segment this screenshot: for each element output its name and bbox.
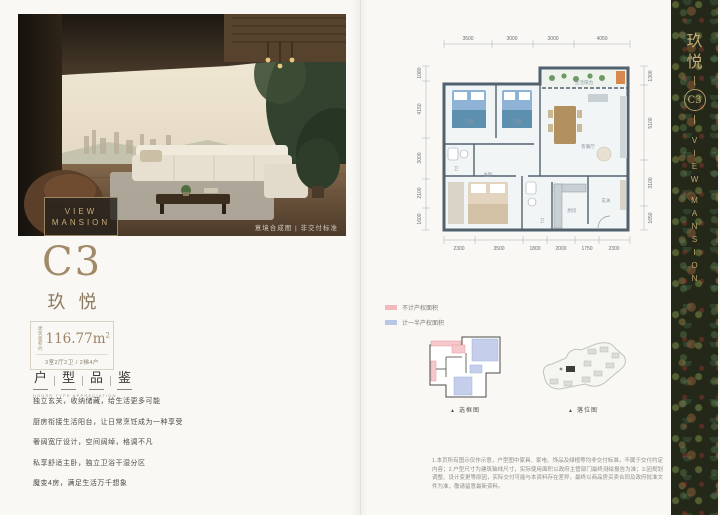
legend-swatch-pink [385,305,397,310]
hero-photo: VIEW MANSION 意境合成图 | 非交付标准 [18,14,346,236]
armchair-icon [597,147,611,161]
feature-item: 厨房衔接生活阳台，让日常烹饪成为一种享受 [33,417,333,427]
svg-text:3100: 3100 [648,177,654,188]
svg-text:1600: 1600 [417,213,423,224]
title-char: 型 [61,367,76,390]
legend-item: 计一半产权面积 [385,318,444,327]
triangle-marker-icon: ▲ [450,408,456,414]
page-fold-line [360,0,361,515]
title-char: 鉴 [117,367,132,390]
unit-code: C3 [12,240,132,284]
svg-text:3500: 3500 [462,36,473,42]
dims-top: 3500 3000 3000 4050 [444,36,630,48]
sidebar-title: 玖悦 [686,30,702,72]
dims-bottom: 2300 3500 1800 2000 1750 2300 [444,236,630,252]
sidebar-unit-badge: C3 [684,89,706,111]
floorplan: 3500 3000 3000 4050 2300 3500 1800 2000 … [392,26,660,256]
title-char: 品 [89,367,104,390]
divider [36,354,108,355]
title-char: 户 [33,367,48,390]
view-mansion-badge: VIEW MANSION [44,197,118,236]
area-value: 116.77m2 [45,331,110,347]
divider [694,115,695,124]
svg-text:2100: 2100 [417,187,423,198]
feature-item: 奢阔宽厅设计，空间阔绰，格调不凡 [33,437,333,447]
shoe-cabinet-icon [620,180,626,210]
unit-info-block: C3 玖悦 建筑面积约 116.77m2 3室2厅2卫 / 2梯4户 [12,240,132,370]
unit-name: 玖悦 [12,288,132,314]
svg-text:1650: 1650 [648,212,654,223]
svg-text:3500: 3500 [493,246,504,252]
dims-left: 1080 4150 3000 2100 1600 [417,66,430,230]
svg-text:4050: 4050 [596,36,607,42]
svg-text:次卧: 次卧 [512,118,522,125]
svg-text:主卧: 主卧 [483,171,493,178]
svg-text:4150: 4150 [417,103,423,114]
area-legend: 不计产权面积 计一半产权面积 [385,303,444,333]
svg-text:生活阳台: 生活阳台 [575,79,594,86]
divider [694,76,695,85]
svg-text:5100: 5100 [648,117,654,128]
svg-text:客餐厅: 客餐厅 [581,143,595,150]
badge-line1: VIEW [65,207,97,216]
section-header: 户 型 品 鉴 HOUSE TYPE APPRECIATION [33,367,132,398]
layout-spec: 3室2厅2卫 / 2梯4户 [34,358,110,366]
svg-text:2000: 2000 [555,246,566,252]
highlighted-building-icon [566,366,575,372]
feature-item: 私享舒适主卧，独立卫浴干湿分区 [33,458,333,468]
dims-right: 1300 5100 3100 1650 [640,66,654,230]
legend-swatch-blue [385,320,397,325]
keyplan-caption: ▲选框图 [426,405,504,414]
siteplan-caption: ▲落位图 [536,405,630,414]
water-heater-icon [616,71,625,84]
legend-label: 计一半产权面积 [402,318,444,327]
triangle-marker-icon: ▲ [568,408,574,414]
sideboard-icon [588,94,608,102]
keyplan-diagram [426,333,504,406]
floorplan-drawing: 3500 3000 3000 4050 2300 3500 1800 2000 … [392,26,660,256]
area-box: 建筑面积约 116.77m2 3室2厅2卫 / 2梯4户 [30,321,114,370]
tv-cabinet-icon [620,96,627,158]
photo-caption: 意境合成图 | 非交付标准 [255,222,338,232]
legend-label: 不计产权面积 [402,303,438,312]
decorative-sidebar: 玖悦 C3 VIEWMANSION [671,0,718,515]
svg-text:1080: 1080 [417,67,423,78]
svg-text:1750: 1750 [581,246,592,252]
svg-text:2300: 2300 [608,246,619,252]
siteplan-diagram [536,339,630,406]
master-bed-icon [448,182,508,224]
svg-text:次卧: 次卧 [464,118,474,125]
disclaimer-text: 1.本页所有图示仅作示意，户型图中家具、家电、饰品及绿植等均非交付标准，不属于交… [432,457,663,491]
svg-text:1300: 1300 [648,70,654,81]
feature-item: 独立玄关，收纳储藏，给生活更多可能 [33,396,333,406]
legend-item: 不计产权面积 [385,303,444,312]
feature-list: 独立玄关，收纳储藏，给生活更多可能 厨房衔接生活阳台，让日常烹饪成为一种享受 奢… [33,396,333,499]
svg-text:2300: 2300 [453,246,464,252]
svg-text:3000: 3000 [417,152,423,163]
svg-text:1800: 1800 [529,246,540,252]
svg-text:3000: 3000 [506,36,517,42]
sidebar-english: VIEWMANSION [691,134,699,285]
section-title: 户 型 品 鉴 [33,367,132,390]
svg-text:玄关: 玄关 [601,197,611,204]
svg-text:3000: 3000 [547,36,558,42]
feature-item: 魔变4房，满足生活万千想象 [33,478,333,488]
brochure-spread: VIEW MANSION 意境合成图 | 非交付标准 C3 玖悦 建筑面积约 1… [0,0,720,515]
area-label: 建筑面积约 [34,326,42,351]
badge-line2: MANSION [52,218,110,227]
svg-text:卫: 卫 [540,218,545,223]
svg-text:卫: 卫 [454,166,459,171]
svg-text:厨房: 厨房 [567,207,577,214]
